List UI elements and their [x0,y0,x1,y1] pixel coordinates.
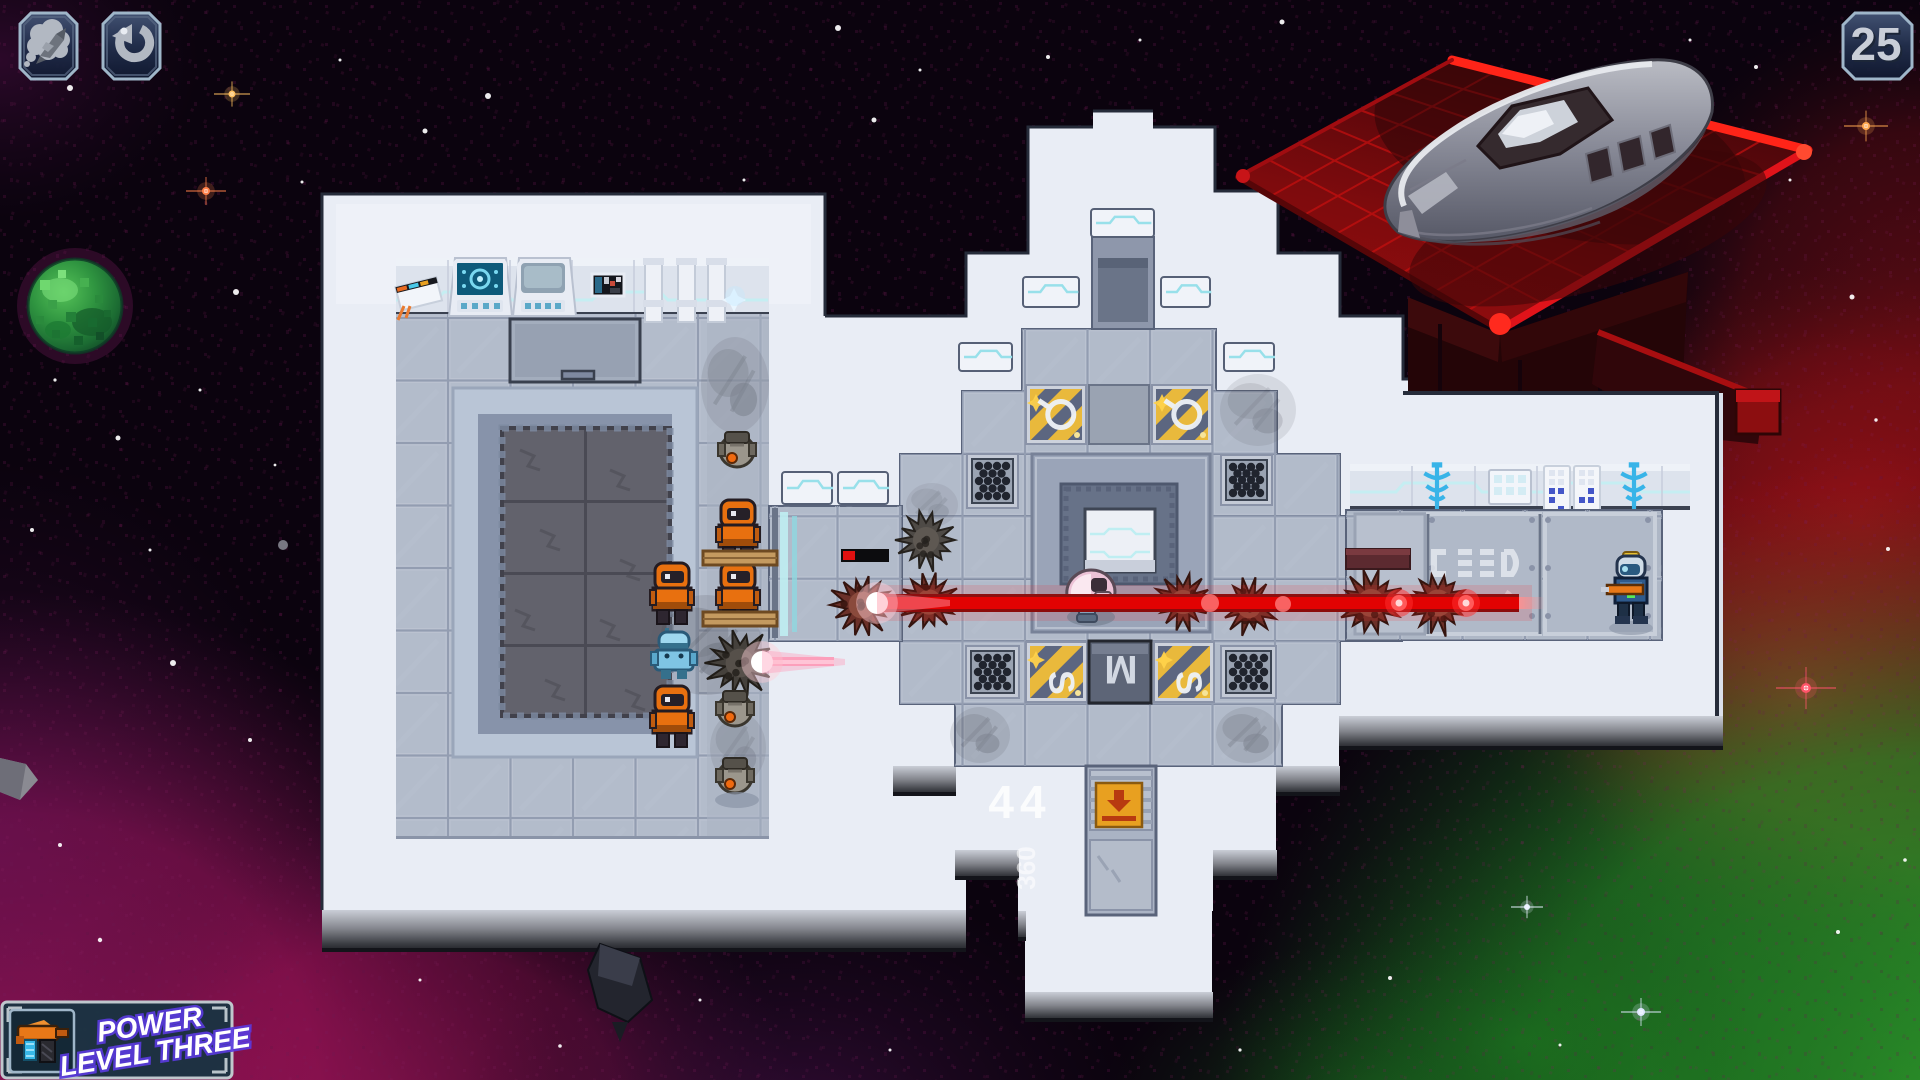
svg-text:360: 360 [1011,846,1041,889]
svg-text:44: 44 [988,776,1051,828]
svg-text:S: S [1040,669,1083,696]
svg-text:S: S [1168,669,1211,696]
svg-text:M: M [1104,647,1137,691]
svg-text:25: 25 [1850,18,1901,70]
